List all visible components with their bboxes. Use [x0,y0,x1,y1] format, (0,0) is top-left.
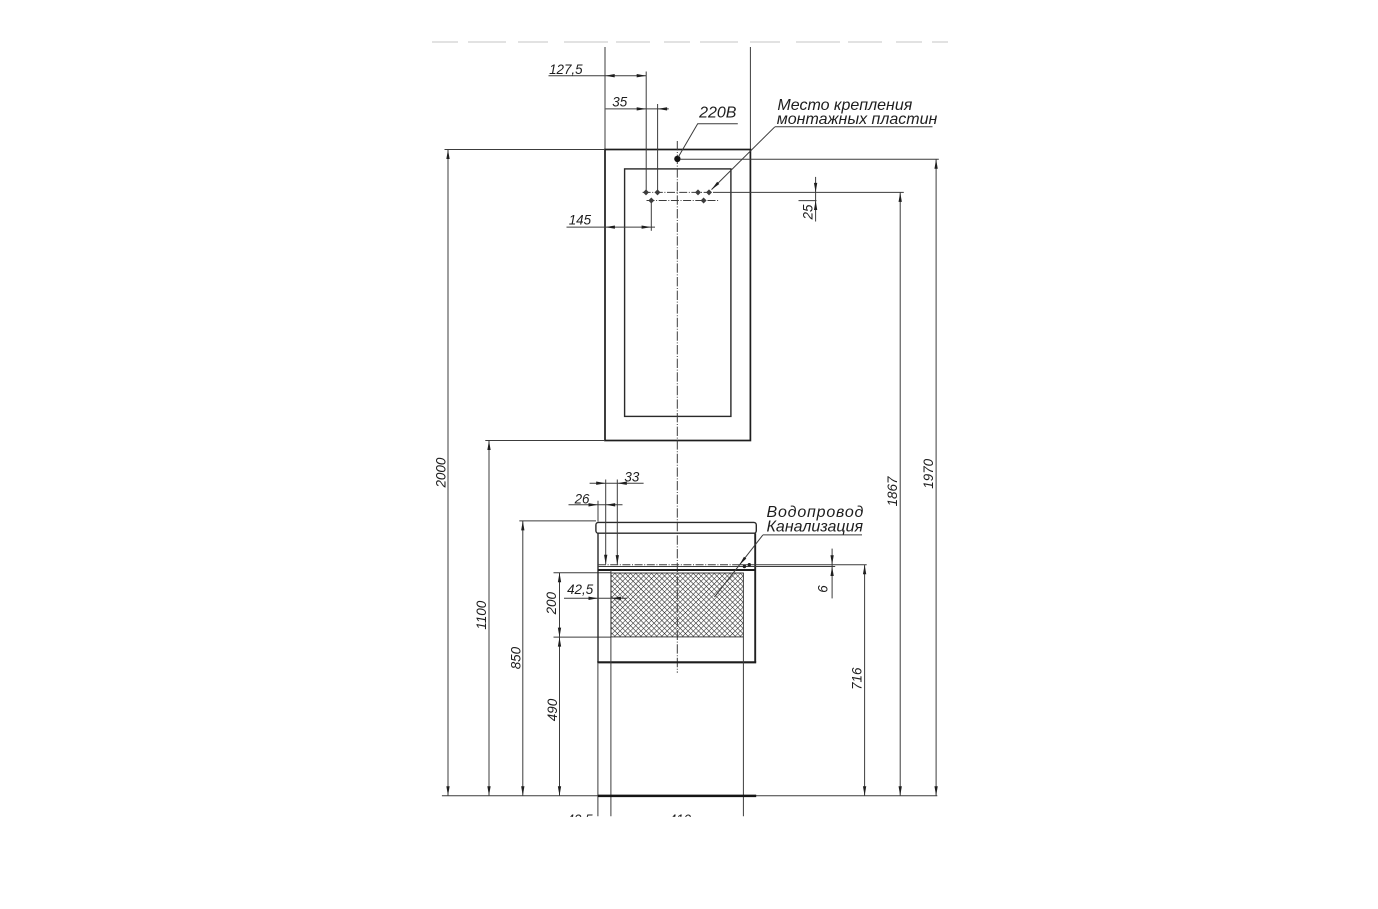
svg-text:2000: 2000 [434,457,449,488]
svg-text:35: 35 [612,94,627,109]
svg-text:1867: 1867 [885,476,900,506]
svg-text:монтажных пластин: монтажных пластин [777,111,938,128]
svg-text:716: 716 [850,667,865,690]
svg-text:200: 200 [544,592,559,616]
svg-text:25: 25 [801,204,816,220]
svg-text:1100: 1100 [474,600,489,629]
svg-text:Канализация: Канализация [767,519,864,536]
svg-text:145: 145 [569,212,592,227]
svg-text:42,5: 42,5 [567,582,594,597]
svg-text:850: 850 [508,646,523,669]
svg-text:33: 33 [624,470,639,485]
svg-text:6: 6 [816,585,831,593]
svg-text:490: 490 [545,698,560,721]
svg-text:220В: 220В [698,104,737,121]
svg-text:26: 26 [574,492,590,507]
svg-text:1970: 1970 [921,458,936,488]
svg-text:127,5: 127,5 [549,62,583,77]
